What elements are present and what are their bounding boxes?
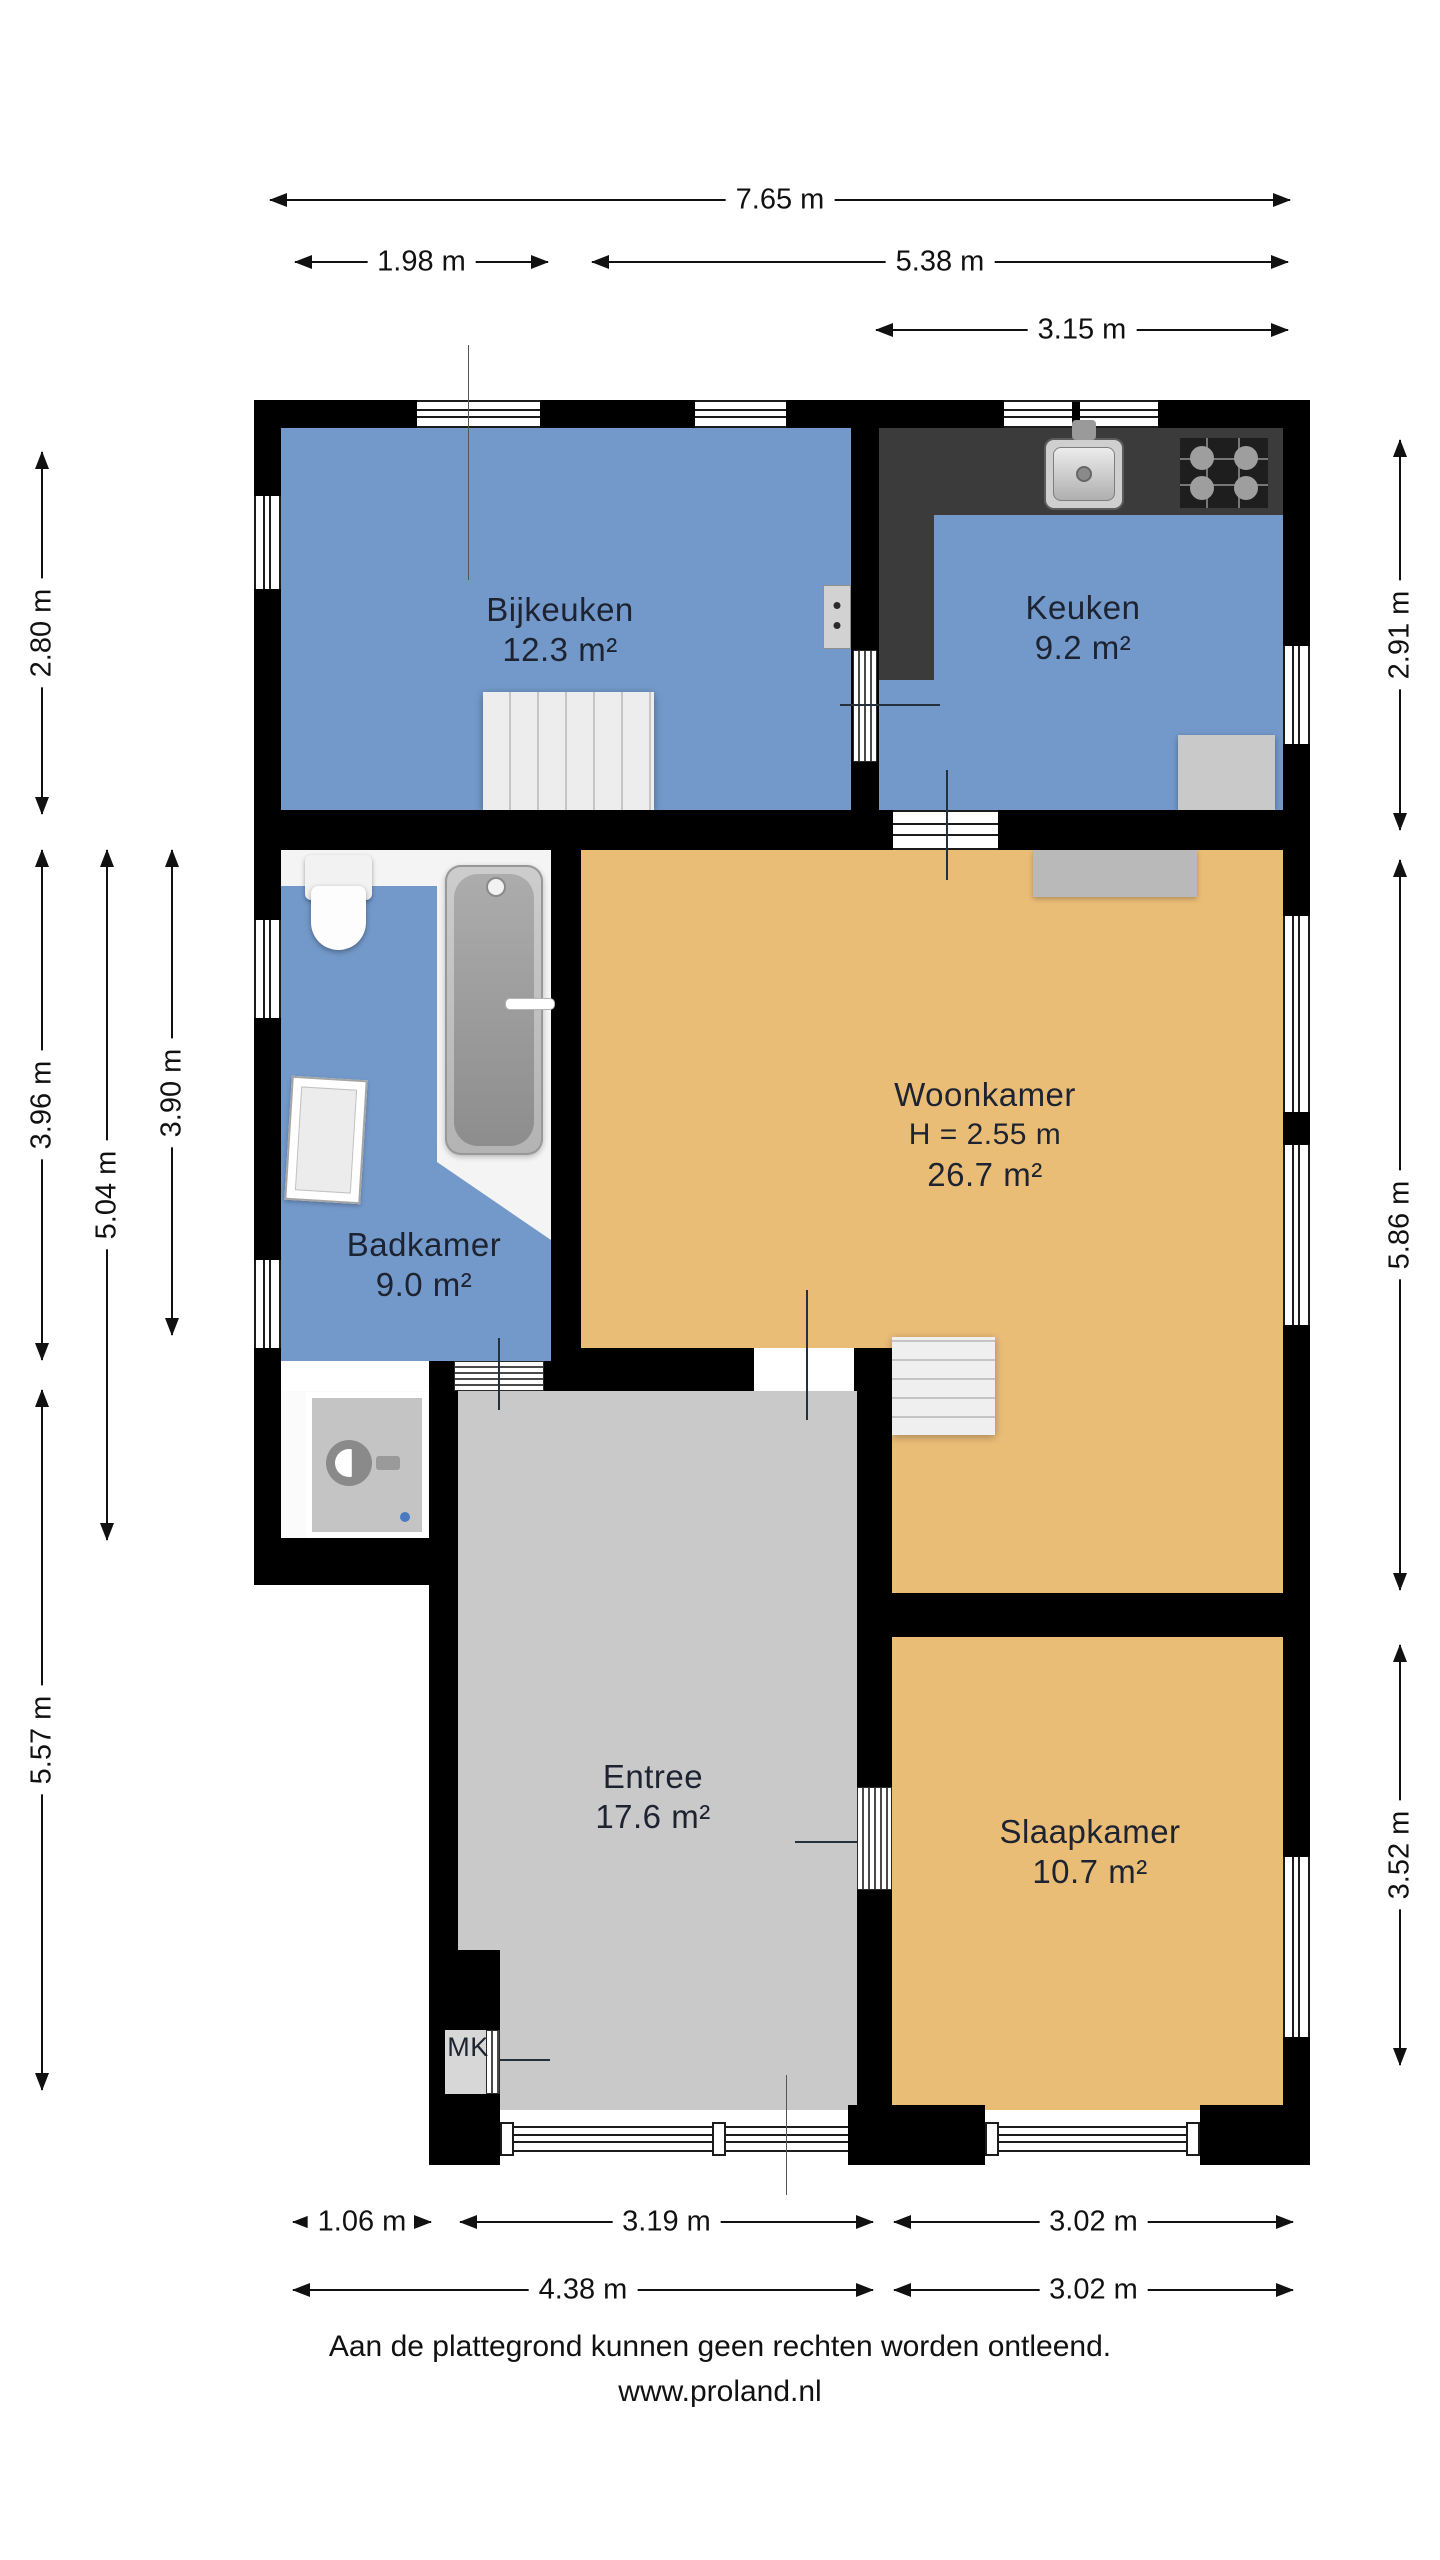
keuken-label: Keuken 9.2 m²: [1026, 588, 1141, 668]
dim-left-inner-2: 3.90 m: [171, 850, 173, 1335]
room-area: 17.6 m²: [595, 1797, 710, 1837]
dim-label: 3.15 m: [1028, 312, 1137, 349]
door-badkamer-entree-swing: [498, 1338, 500, 1410]
meterkast-door-swing: [500, 2059, 550, 2061]
kitchen-cabinet: [1178, 735, 1275, 810]
washbasin-icon: [284, 1076, 367, 1204]
wall-horizontal-mid: [254, 810, 1310, 850]
washing-machine-icon: [312, 1398, 422, 1532]
wall-alcove-bottom: [254, 1538, 429, 1585]
website-text: www.proland.nl: [0, 2375, 1440, 2409]
door-bijkeuken-keuken: [853, 650, 877, 762]
window-top-1: [417, 400, 540, 428]
bijkeuken-label: Bijkeuken 12.3 m²: [486, 590, 634, 670]
room-name: Keuken: [1026, 588, 1141, 628]
washing-machine-indicator: [400, 1512, 410, 1522]
window-left-badkamer-1: [254, 920, 281, 1018]
dim-right-keuken-height: 2.91 m: [1399, 440, 1401, 830]
door-bijkeuken-keuken-swing: [840, 704, 940, 706]
door-woonkamer-entree-opening: [754, 1348, 854, 1391]
staircase-bijkeuken-icon: [483, 692, 654, 810]
room-area: 9.0 m²: [347, 1265, 501, 1305]
entree-floor: [458, 1391, 857, 2110]
bathtub-handle-icon: [505, 998, 555, 1010]
room-area: 10.7 m²: [999, 1852, 1180, 1892]
dim-label: 5.86 m: [1382, 1171, 1419, 1280]
boiler-icon: [823, 585, 851, 649]
window-left-bijkeuken: [254, 496, 281, 589]
washbasin-inner: [295, 1086, 357, 1193]
door-keuken-woonkamer-swing: [946, 770, 948, 880]
extension-line-top: [468, 345, 469, 580]
dim-bottom-slaapkamer-width: 3.02 m: [894, 2221, 1293, 2223]
dim-left-badkamer-height: 3.96 m: [41, 850, 43, 1360]
meterkast-name: MK: [447, 2032, 489, 2062]
window-right-keuken: [1283, 646, 1310, 744]
dim-right-woonkamer-height: 5.86 m: [1399, 860, 1401, 1590]
kitchen-sink-icon: [1044, 438, 1124, 510]
dim-bottom-entree-width: 3.19 m: [460, 2221, 873, 2223]
washing-machine-tap-icon: [376, 1456, 400, 1470]
door-entree-slaapkamer: [857, 1787, 892, 1890]
wall-woonkamer-slaapkamer: [892, 1593, 1310, 1637]
dim-label: 3.90 m: [154, 1038, 191, 1147]
window-bottom-entree-mullion-2: [712, 2122, 726, 2156]
entree-label: Entree 17.6 m²: [595, 1757, 710, 1837]
dim-label: 3.19 m: [612, 2204, 721, 2241]
dim-left-entree-height: 5.57 m: [41, 1390, 43, 2090]
window-right-woonkamer-2: [1283, 1145, 1310, 1325]
dim-label: 2.91 m: [1382, 581, 1419, 690]
window-right-woonkamer-1: [1283, 916, 1310, 1112]
dim-label: 4.38 m: [529, 2272, 638, 2309]
kitchen-sink-drain: [1076, 466, 1092, 482]
dim-left-bijkeuken-height: 2.80 m: [41, 452, 43, 814]
dim-bottom-right-total: 3.02 m: [894, 2289, 1293, 2291]
room-name: Entree: [595, 1757, 710, 1797]
staircase-woonkamer-icon: [892, 1337, 995, 1435]
woonkamer-label: Woonkamer H = 2.55 m 26.7 m²: [894, 1075, 1076, 1195]
bathtub-icon: [445, 865, 543, 1155]
burner-icon: [1234, 446, 1258, 470]
dim-label: 5.04 m: [89, 1141, 126, 1250]
dim-label: 1.98 m: [367, 244, 476, 281]
dim-label: 1.06 m: [308, 2204, 417, 2241]
dim-bottom-alcove-width: 1.06 m: [293, 2221, 431, 2223]
cooktop-icon: [1180, 438, 1268, 508]
door-entree-slaapkamer-swing: [795, 1841, 857, 1843]
door-woonkamer-entree-swing: [806, 1290, 808, 1420]
bathtub-faucet-icon: [486, 877, 506, 897]
radiator-icon: [1033, 850, 1197, 897]
window-bottom-slaapkamer-mullion-2: [1186, 2122, 1200, 2156]
toilet-bowl-icon: [311, 886, 366, 950]
wall-bijkeuken-keuken: [851, 400, 879, 850]
washing-machine-door-icon: [326, 1440, 372, 1486]
dim-top-left-width: 1.98 m: [295, 261, 548, 263]
dim-label: 5.38 m: [886, 244, 995, 281]
dim-right-slaapkamer-height: 3.52 m: [1399, 1645, 1401, 2065]
window-bottom-slaapkamer-mullion-1: [985, 2122, 999, 2156]
dim-label: 3.02 m: [1039, 2272, 1148, 2309]
dim-top-right-width: 5.38 m: [592, 261, 1288, 263]
wall-bottom-mid: [848, 2105, 985, 2165]
burner-icon: [1190, 446, 1214, 470]
dim-bottom-left-total: 4.38 m: [293, 2289, 873, 2291]
disclaimer-text: Aan de plattegrond kunnen geen rechten w…: [0, 2330, 1440, 2364]
window-bottom-entree: [500, 2126, 848, 2152]
dim-label: 7.65 m: [726, 182, 835, 219]
burner-icon: [1190, 476, 1214, 500]
kitchen-faucet-icon: [1072, 420, 1096, 440]
room-ceiling-height: H = 2.55 m: [894, 1115, 1076, 1155]
window-bottom-entree-mullion-1: [500, 2122, 514, 2156]
dim-label: 3.02 m: [1039, 2204, 1148, 2241]
room-area: 9.2 m²: [1026, 628, 1141, 668]
slaapkamer-label: Slaapkamer 10.7 m²: [999, 1812, 1180, 1892]
room-area: 26.7 m²: [894, 1155, 1076, 1195]
wall-bottom-right: [1200, 2105, 1310, 2165]
burner-icon: [1234, 476, 1258, 500]
floor-plan-page: { "floorplan": { "rooms": { "bijkeuken":…: [0, 0, 1440, 2560]
meterkast-label: MK: [447, 2032, 489, 2062]
window-top-2: [695, 400, 786, 428]
room-name: Slaapkamer: [999, 1812, 1180, 1852]
dim-top-total-width: 7.65 m: [270, 199, 1290, 201]
dim-left-inner-1: 5.04 m: [106, 850, 108, 1540]
dim-label: 5.57 m: [24, 1686, 61, 1795]
extension-line-bottom: [786, 2075, 787, 2195]
dim-top-kitchen-width: 3.15 m: [876, 329, 1288, 331]
dim-label: 3.52 m: [1382, 1801, 1419, 1910]
wall-badkamer-right: [551, 850, 581, 1361]
kitchen-counter-column: [879, 428, 934, 680]
room-name: Woonkamer: [894, 1075, 1076, 1115]
bathtub-basin: [454, 874, 534, 1146]
badkamer-label: Badkamer 9.0 m²: [347, 1225, 501, 1305]
window-left-badkamer-2: [254, 1260, 281, 1348]
room-name: Bijkeuken: [486, 590, 634, 630]
window-bottom-slaapkamer: [985, 2126, 1200, 2152]
room-area: 12.3 m²: [486, 630, 634, 670]
dim-label: 3.96 m: [24, 1051, 61, 1160]
dim-label: 2.80 m: [24, 579, 61, 688]
wall-entree-slaapkamer: [857, 1348, 892, 2165]
room-name: Badkamer: [347, 1225, 501, 1265]
window-right-slaapkamer: [1283, 1857, 1310, 2037]
